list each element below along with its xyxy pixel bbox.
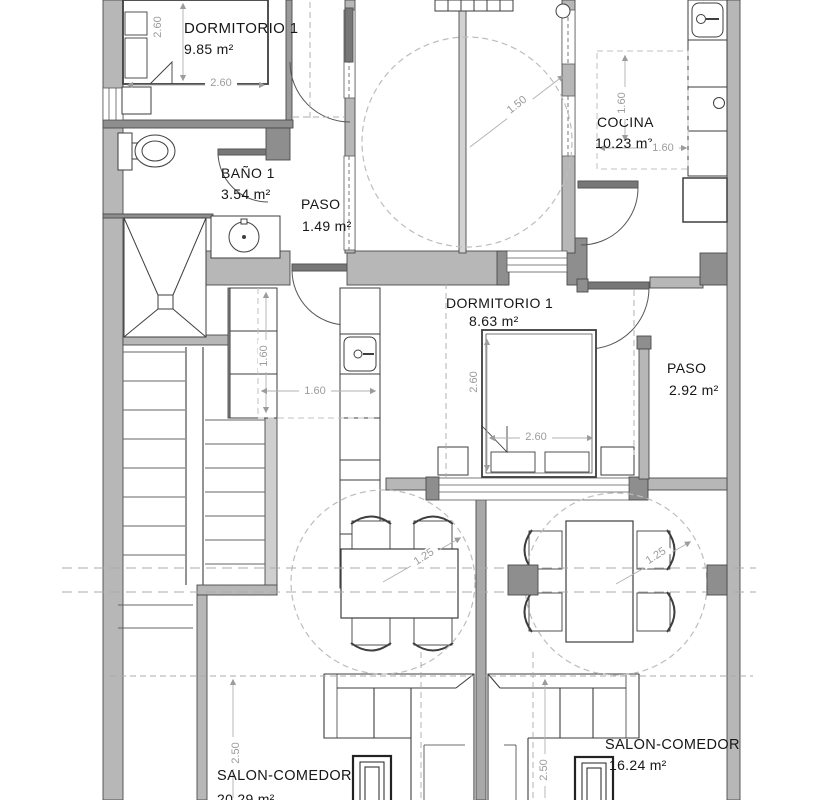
dimension-label: 2.60 <box>468 366 480 398</box>
room-label-dormitorio-2: DORMITORIO 1 <box>446 295 553 311</box>
toilet-tank <box>118 133 132 170</box>
dimension-label: 2.50 <box>230 737 242 769</box>
dining-set-right <box>525 521 675 642</box>
room-label-paso-1: PASO <box>301 196 340 212</box>
room-area-dormitorio-2: 8.63 m² <box>469 313 519 329</box>
nightstand <box>438 447 468 475</box>
dimension-label: 1.60 <box>616 87 628 119</box>
room-area-paso-1: 1.49 m² <box>302 218 352 234</box>
tv-right <box>575 757 613 800</box>
dining-table <box>341 549 458 618</box>
dining-set-left <box>341 517 458 651</box>
door-leaf <box>345 8 353 62</box>
door-leaf <box>292 264 347 271</box>
room-label-salon-right: SALON-COMEDOR <box>605 737 740 753</box>
room-area-bano-1: 3.54 m² <box>221 186 271 202</box>
knob <box>556 4 570 18</box>
dimension-label: 2.60 <box>152 11 164 43</box>
tv-left <box>353 756 391 800</box>
radiator-grille <box>435 0 570 18</box>
room-label-dormitorio-1: DORMITORIO 1 <box>184 20 299 37</box>
dimension-label: 1.60 <box>299 385 331 397</box>
room-area-salon-right: 16.24 m² <box>609 757 667 773</box>
dimension-label: 2.60 <box>520 431 552 443</box>
dimension-label: 1.60 <box>647 142 679 154</box>
dimension-label: 2.60 <box>205 77 237 89</box>
shower-tray <box>124 218 206 337</box>
door-leaf <box>218 149 266 155</box>
room-area-paso-2: 2.92 m² <box>669 382 719 398</box>
dimension-label: 1.60 <box>258 340 270 372</box>
room-label-paso-2: PASO <box>667 360 706 376</box>
pillow <box>491 452 535 472</box>
room-area-salon-left: 20.29 m² <box>217 791 275 800</box>
floor-plan-drawing <box>0 0 827 800</box>
door-leaf <box>588 282 649 289</box>
floor-plan-canvas: DORMITORIO 1 9.85 m² BAÑO 1 3.54 m² PASO… <box>0 0 827 800</box>
room-area-cocina: 10.23 m² <box>595 135 653 151</box>
dining-table <box>566 521 633 642</box>
doors <box>218 8 649 349</box>
shower-drain <box>158 295 173 309</box>
nightstand <box>122 87 151 114</box>
door-leaf <box>578 181 638 188</box>
room-label-salon-left: SALON-COMEDOR <box>217 768 352 784</box>
room-label-bano-1: BAÑO 1 <box>221 165 275 181</box>
bed-dormitorio-2 <box>438 330 634 477</box>
dimension-label: 2.50 <box>538 754 550 786</box>
bed-dormitorio-1 <box>122 0 268 114</box>
pillow <box>545 452 589 472</box>
nightstand <box>601 447 634 475</box>
room-area-dormitorio-1: 9.85 m² <box>184 41 234 57</box>
